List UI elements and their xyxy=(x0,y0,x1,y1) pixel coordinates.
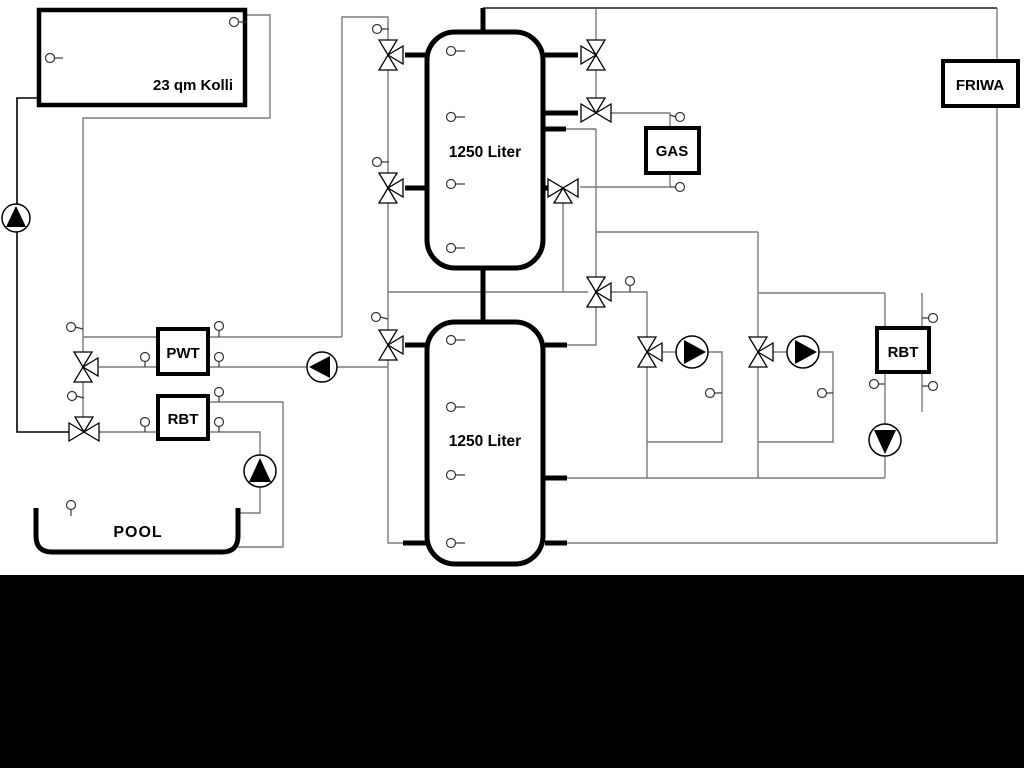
three-way-valve-icon xyxy=(74,352,98,382)
pipe-solar-return xyxy=(17,98,69,432)
three-way-valve-icon xyxy=(379,40,403,70)
pump-right-icon xyxy=(676,336,708,368)
three-way-valve-icon xyxy=(587,277,611,307)
three-way-valve-icon xyxy=(379,330,403,360)
three-way-valve-icon xyxy=(548,179,578,203)
temp-sensor-icon xyxy=(670,113,685,122)
pipe-gas-return xyxy=(580,175,670,187)
lower-tank-label: 1250 Liter xyxy=(449,433,521,450)
pipe-charge-valve-to-tank xyxy=(567,306,596,345)
temp-sensor-icon xyxy=(373,25,390,34)
temp-sensor-icon xyxy=(141,353,150,368)
pipe-lower-tank-bottom-left xyxy=(388,360,405,543)
pwt-label: PWT xyxy=(166,345,199,362)
upper-tank-label: 1250 Liter xyxy=(449,144,521,161)
temp-sensor-icon xyxy=(922,314,938,323)
pool-label: POOL xyxy=(113,524,162,541)
rbt-heating-label: RBT xyxy=(888,344,919,361)
temp-sensor-icon xyxy=(215,322,224,338)
temp-sensor-icon xyxy=(670,183,685,192)
three-way-valve-icon xyxy=(69,417,99,441)
temp-sensor-icon xyxy=(373,158,390,167)
hydraulic-schematic: 23 qm Kolli 1250 Liter 1250 Liter GAS FR… xyxy=(0,0,1024,768)
gas-boiler-label: GAS xyxy=(656,143,689,160)
pump-left-icon xyxy=(307,352,337,382)
three-way-valve-icon xyxy=(581,40,605,70)
pump-down-icon xyxy=(869,424,901,456)
three-way-valve-icon xyxy=(379,173,403,203)
temp-sensor-icon xyxy=(68,392,85,401)
temp-sensor-icon xyxy=(706,389,723,398)
pipe-pool-inlet xyxy=(238,486,260,513)
three-way-valve-icon xyxy=(749,337,773,367)
temp-sensor-icon xyxy=(922,382,938,391)
friwa-label: FRIWA xyxy=(956,77,1004,94)
temp-sensor-icon xyxy=(626,277,635,293)
temp-sensor-icon xyxy=(818,389,834,398)
temp-sensor-icon xyxy=(215,388,224,403)
rbt-pool-label: RBT xyxy=(168,411,199,428)
three-way-valve-icon xyxy=(581,98,611,122)
collector-label: 23 qm Kolli xyxy=(153,77,233,94)
temp-sensor-icon xyxy=(215,418,224,433)
temp-sensor-icon xyxy=(870,380,886,389)
pump-up-icon xyxy=(2,204,30,232)
temp-sensor-icon xyxy=(372,313,389,322)
pump-right-icon xyxy=(787,336,819,368)
three-way-valve-icon xyxy=(638,337,662,367)
bottom-black-bar xyxy=(0,575,1024,768)
temp-sensor-icon xyxy=(67,501,76,517)
pump-up-icon xyxy=(244,455,276,487)
pipe-to-circuit1 xyxy=(611,292,647,337)
temp-sensor-icon xyxy=(67,323,84,332)
temp-sensor-icon xyxy=(215,353,224,368)
pipe-gas-supply xyxy=(611,113,670,126)
pipe-pool-supply xyxy=(208,432,260,456)
temp-sensor-icon xyxy=(141,418,150,433)
